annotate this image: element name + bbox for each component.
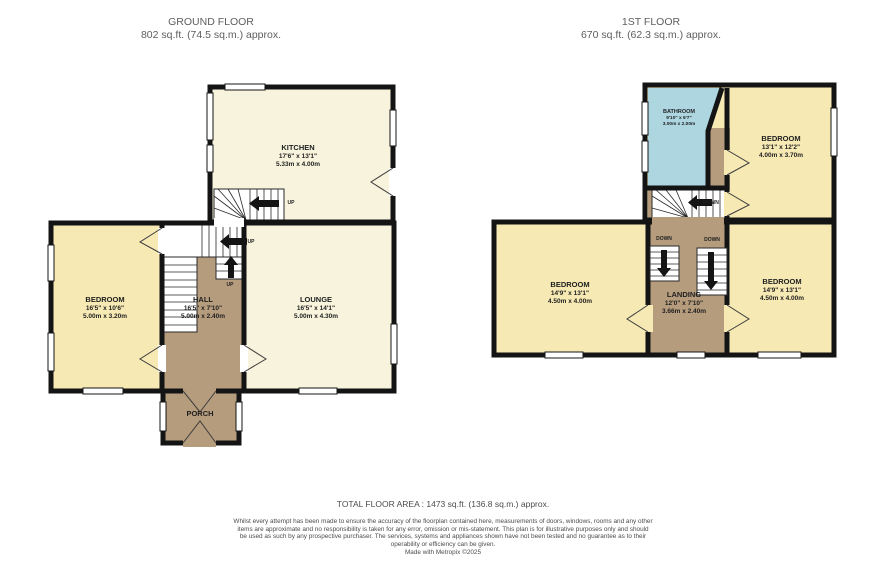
door-opening [158, 228, 166, 254]
room-label-lounge: LOUNGE 16'5" x 14'1" 5.00m x 4.30m [294, 296, 338, 321]
door-opening [183, 388, 216, 395]
door-opening [645, 305, 653, 332]
first-floor-header: 1ST FLOOR 670 sq.ft. (62.3 sq.m.) approx… [501, 16, 801, 42]
stair-label-down: DOWN [704, 237, 720, 243]
door-opening [724, 192, 732, 216]
stair-label-up: UP [248, 239, 255, 245]
room-label-kitchen: KITCHEN 17'6" x 13'1" 5.33m x 4.00m [276, 144, 320, 169]
door-opening [724, 150, 732, 175]
first-floor-title: 1ST FLOOR [501, 16, 801, 29]
stair-opening [214, 218, 244, 227]
stair-label-down: DOWN [656, 236, 672, 242]
room-label-bedroom-left: BEDROOM 14'9" x 13'1" 4.50m x 4.00m [548, 281, 592, 306]
door-opening [240, 345, 248, 372]
first-floor-area: 670 sq.ft. (62.3 sq.m.) approx. [501, 29, 801, 42]
door-opening [183, 440, 216, 447]
ground-floor-area: 802 sq.ft. (74.5 sq.m.) approx. [61, 29, 361, 42]
door-opening [389, 168, 397, 196]
room-label-landing: LANDING 12'0" x 7'10" 3.66m x 2.40m [662, 291, 706, 316]
room-label-bedroom-ground: BEDROOM 16'5" x 10'6" 5.00m x 3.20m [83, 296, 127, 321]
stair-label-down: DOWN [703, 200, 719, 206]
room-label-bedroom-top: BEDROOM 13'1" x 12'2" 4.00m x 3.70m [759, 135, 803, 160]
ground-floor-header: GROUND FLOOR 802 sq.ft. (74.5 sq.m.) app… [61, 16, 361, 42]
ground-floor-plan [48, 84, 397, 447]
total-floor-area: TOTAL FLOOR AREA : 1473 sq.ft. (136.8 sq… [243, 499, 643, 509]
door-opening [158, 345, 166, 372]
footer-block: Whilst every attempt has been made to en… [233, 518, 653, 557]
door-opening [724, 305, 732, 332]
disclaimer-text: Whilst every attempt has been made to en… [233, 518, 653, 549]
room-label-bathroom: BATHROOM 9'10" x 6'7" 3.00m x 2.00m [663, 109, 696, 128]
stair-label-up: UP [227, 282, 234, 288]
ground-floor-title: GROUND FLOOR [61, 16, 361, 29]
room-label-bedroom-right: BEDROOM 14'9" x 13'1" 4.50m x 4.00m [760, 278, 804, 303]
stair-opening [652, 217, 724, 227]
credit-text: Made with Metropix ©2025 [233, 549, 653, 557]
stair-label-up: UP [288, 200, 295, 206]
room-label-porch: PORCH [186, 410, 213, 419]
floorplan-canvas [0, 0, 886, 566]
floorplan-page: GROUND FLOOR 802 sq.ft. (74.5 sq.m.) app… [0, 0, 886, 566]
room-label-hall: HALL 16'5" x 7'10" 5.00m x 2.40m [181, 296, 225, 321]
